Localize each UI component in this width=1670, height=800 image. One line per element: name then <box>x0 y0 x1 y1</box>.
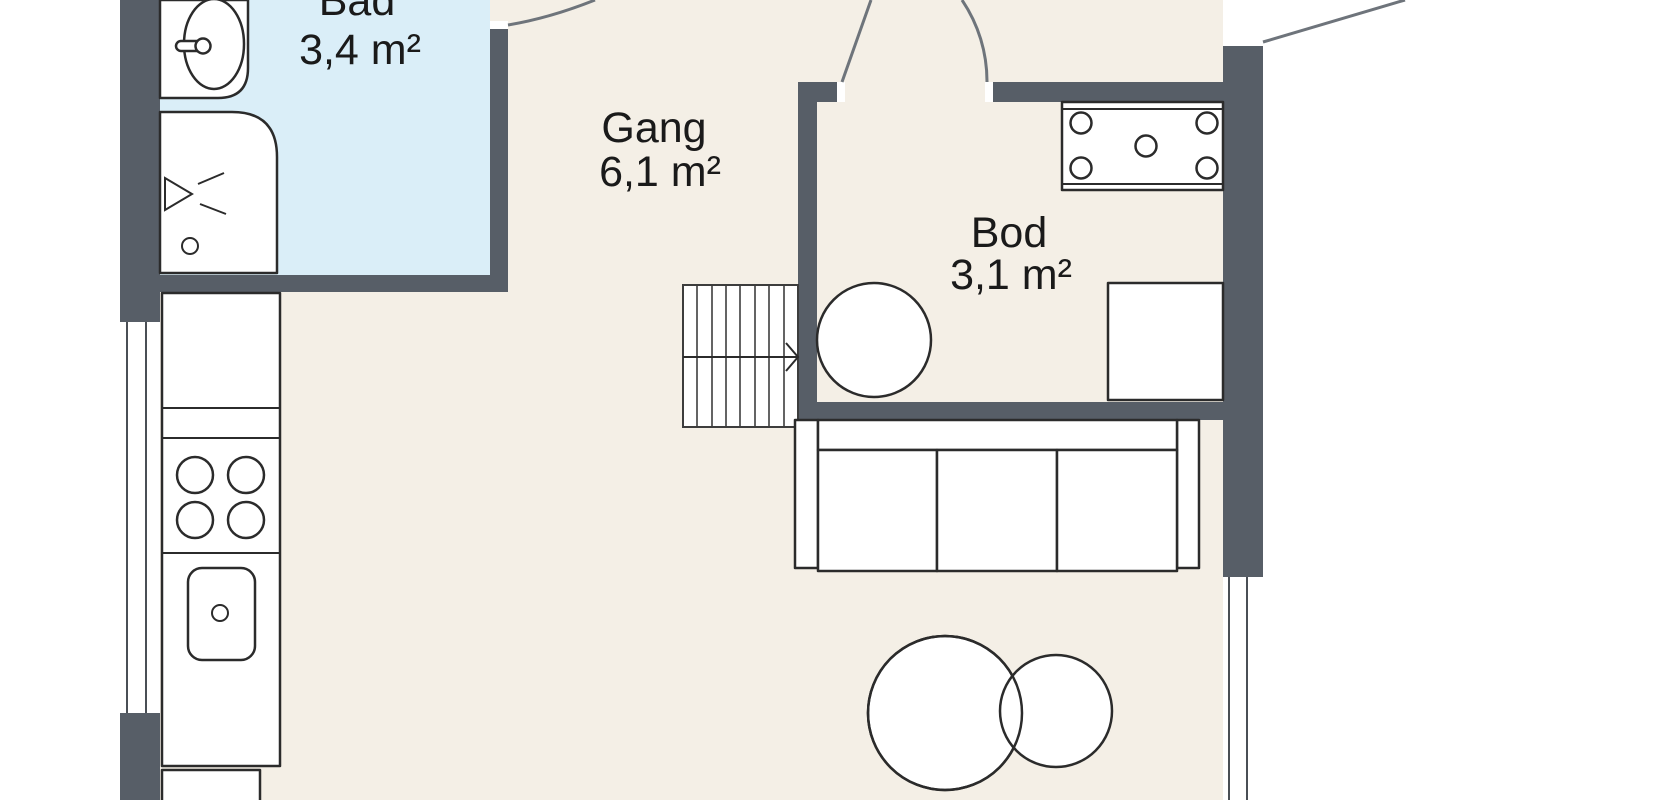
burner-icon <box>228 502 264 538</box>
wall-exterior-right <box>1223 46 1263 577</box>
wall-bathroom-right <box>490 29 508 292</box>
water-heater <box>817 283 931 397</box>
burner-icon <box>177 457 213 493</box>
sofa <box>795 420 1199 571</box>
sofa-cushion <box>937 450 1057 571</box>
staircase <box>683 285 798 427</box>
window-left <box>120 322 160 713</box>
wall-bod-bottom <box>798 402 1223 420</box>
burner-icon <box>228 457 264 493</box>
burner-icon <box>1071 113 1092 134</box>
burner-icon <box>177 502 213 538</box>
round-table-small <box>1000 655 1112 767</box>
room-area-bod: 3,1 m² <box>950 251 1072 299</box>
burner-icon <box>1071 158 1092 179</box>
wall-exterior-left-upper <box>120 0 160 322</box>
wall-bod-left <box>798 82 817 420</box>
room-area-bad: 3,4 m² <box>299 26 421 74</box>
door-jamb-bathroom <box>490 21 508 29</box>
window-right <box>1223 577 1263 800</box>
shower <box>160 112 277 273</box>
vanity-faucet-knob <box>196 39 211 54</box>
kitchen-sink <box>188 568 255 660</box>
wall-exterior-left-lower <box>120 713 160 800</box>
burner-icon <box>1197 158 1218 179</box>
room-area-gang: 6,1 m² <box>599 148 721 196</box>
exterior-background <box>1223 0 1670 38</box>
bod-cabinet <box>1108 283 1223 400</box>
sofa-armrest-left <box>795 420 818 568</box>
wall-bod-top-left <box>798 82 837 102</box>
wall-bathroom-bottom <box>120 275 508 292</box>
room-name-bad: Bad <box>319 0 396 25</box>
room-name-bod: Bod <box>971 209 1048 257</box>
sofa-cushion <box>1057 450 1177 571</box>
door-jamb-bod-left <box>837 82 845 102</box>
room-name-gang: Gang <box>601 104 706 152</box>
kitchen-cabinet-lower <box>162 770 260 800</box>
sofa-back <box>818 420 1177 450</box>
kitchen-counter <box>162 293 280 800</box>
burner-icon <box>1197 113 1218 134</box>
door-jamb-entry <box>1223 38 1263 46</box>
cooktop <box>1062 102 1223 190</box>
sofa-cushion <box>818 450 937 571</box>
wall-bod-top-right <box>993 82 1223 102</box>
burner-icon <box>1136 136 1157 157</box>
sofa-armrest-right <box>1177 420 1199 568</box>
floor-plan: Bad 3,4 m² Gang 6,1 m² Bod 3,1 m² <box>0 0 1670 800</box>
door-jamb-bod-right <box>985 82 993 102</box>
